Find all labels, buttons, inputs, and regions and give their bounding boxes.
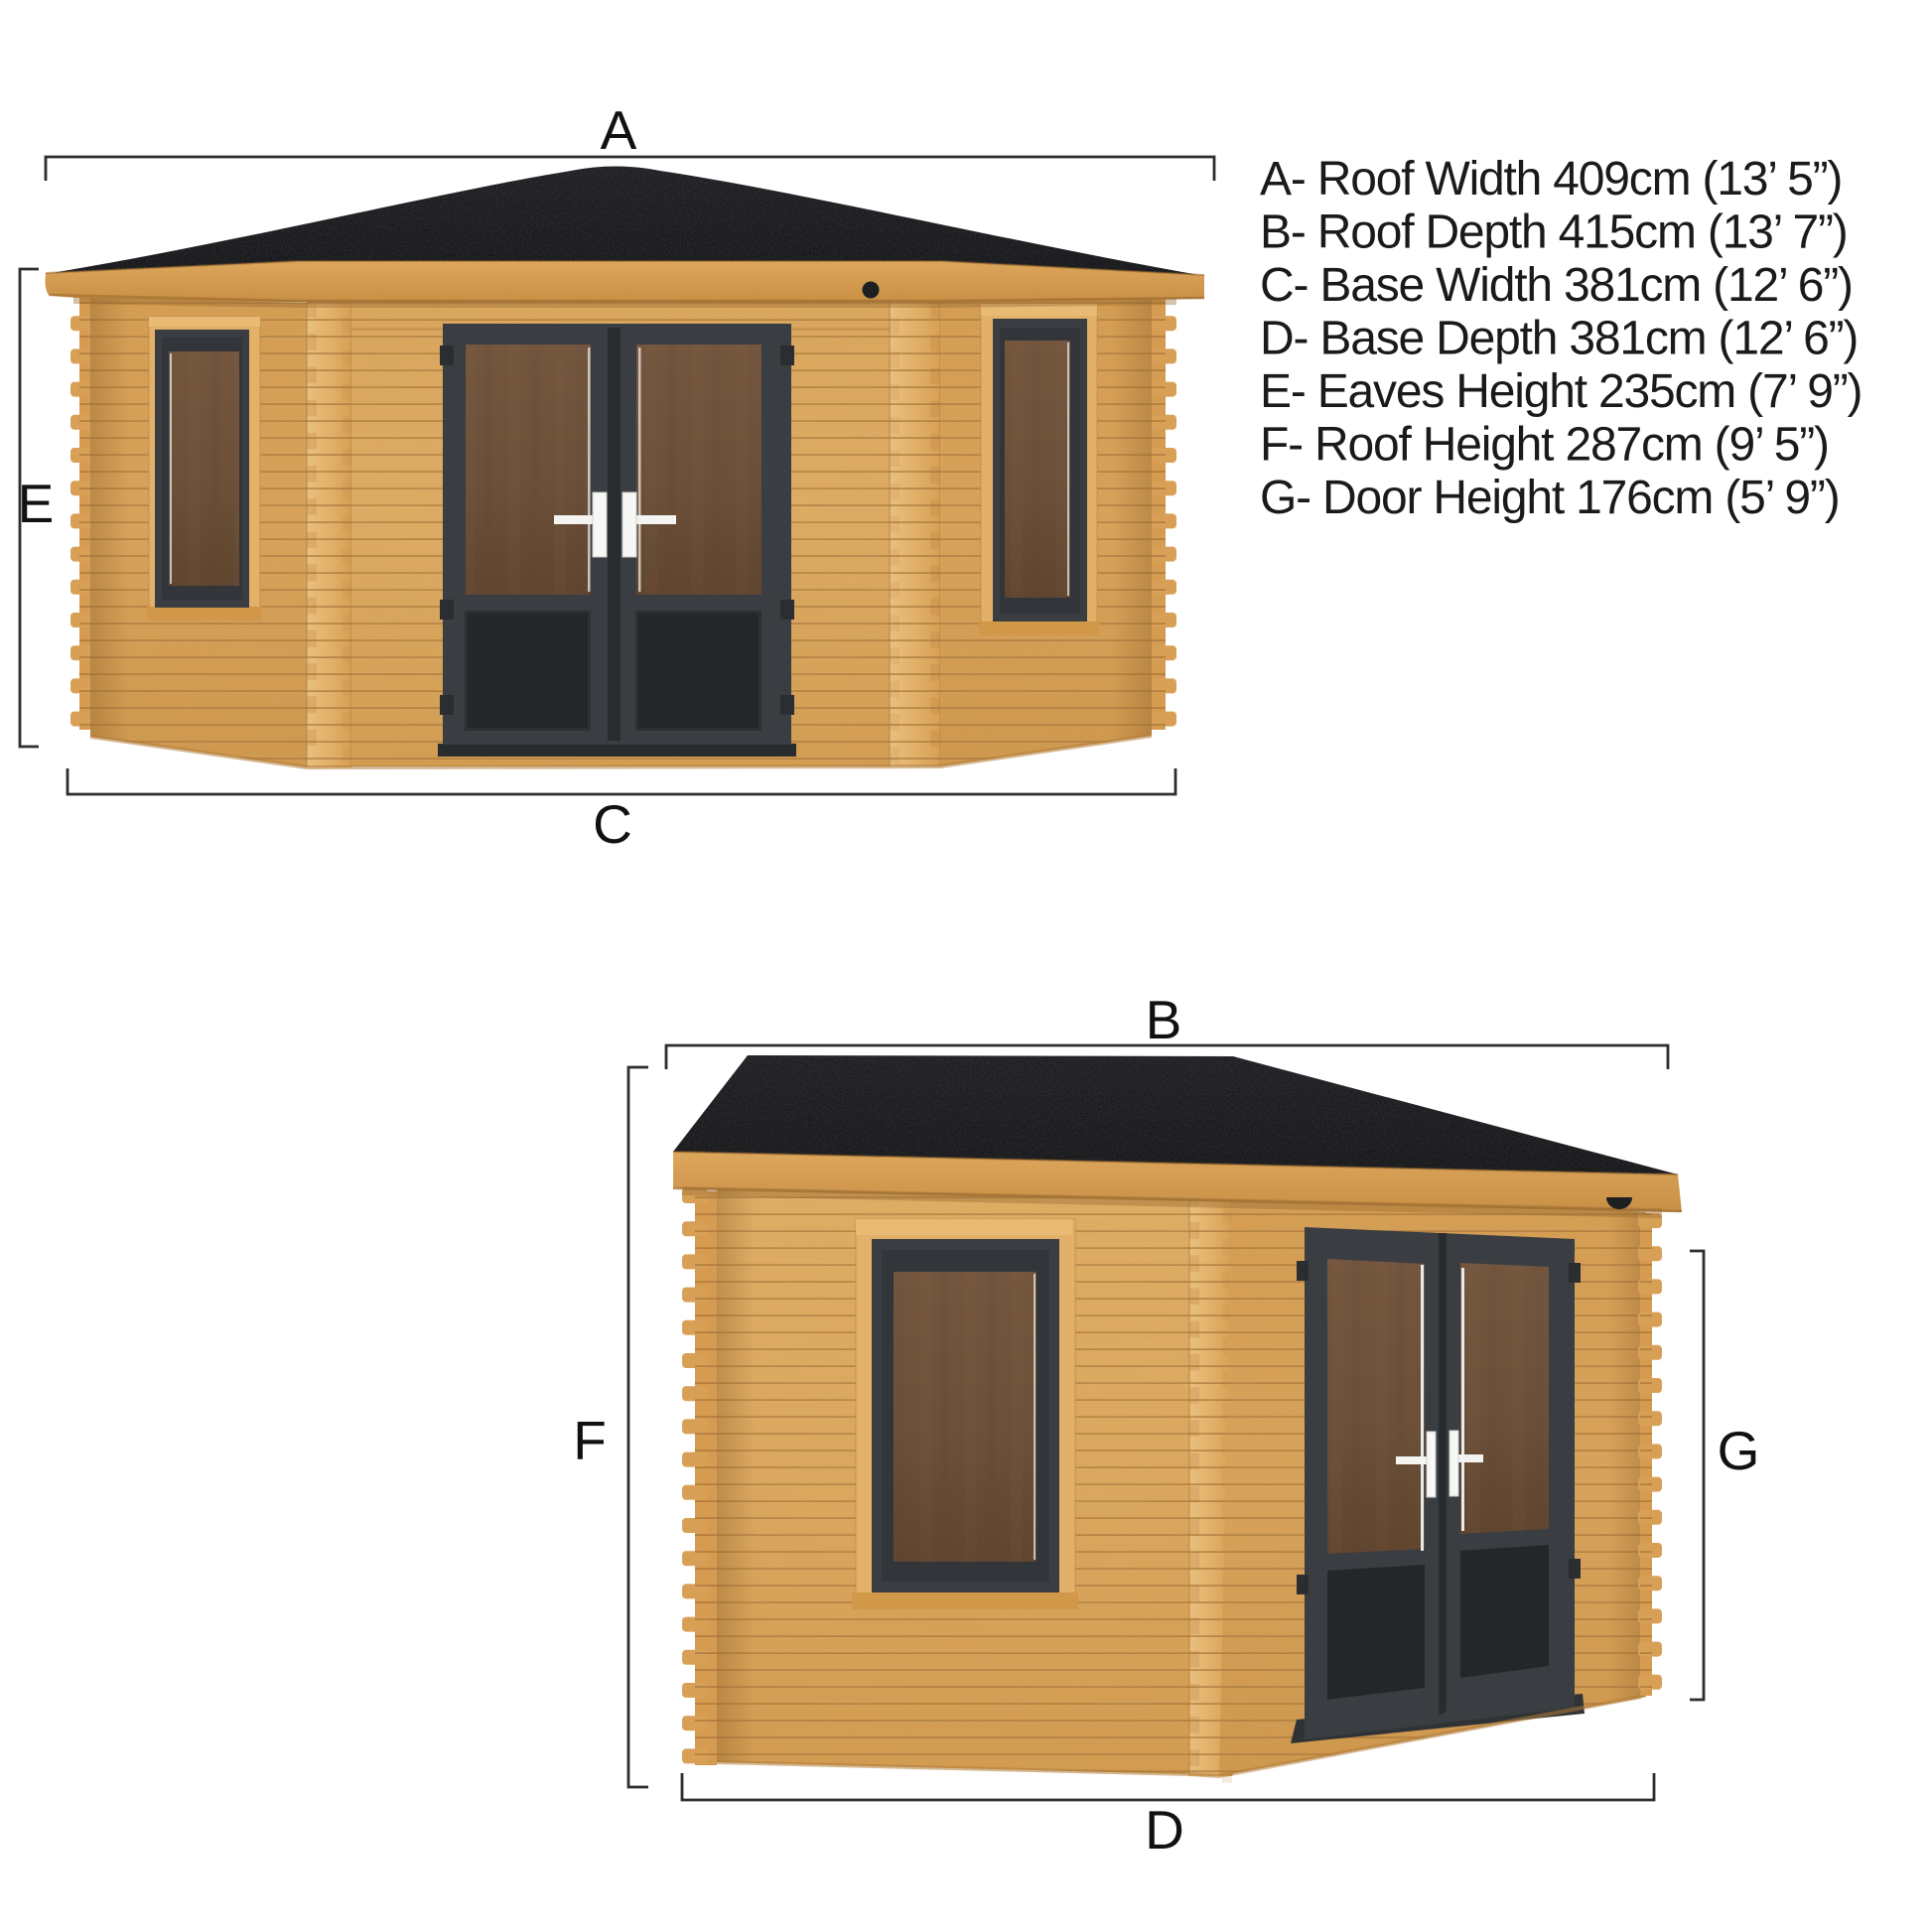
svg-text:F: F (573, 1410, 607, 1471)
svg-text:D: D (1145, 1799, 1184, 1861)
svg-text:G: G (1718, 1420, 1760, 1481)
svg-text:C: C (593, 793, 632, 855)
svg-text:B: B (1146, 989, 1182, 1050)
svg-text:C- Base Width 381cm (12’ 6”): C- Base Width 381cm (12’ 6”) (1260, 259, 1853, 312)
svg-text:E- Eaves Height 235cm (7’ 9”): E- Eaves Height 235cm (7’ 9”) (1260, 365, 1862, 418)
svg-text:D- Base Depth 381cm (12’ 6”): D- Base Depth 381cm (12’ 6”) (1260, 313, 1858, 365)
svg-text:E: E (18, 473, 55, 534)
svg-text:F- Roof Height 287cm (9’ 5”): F- Roof Height 287cm (9’ 5”) (1260, 419, 1829, 472)
svg-text:B- Roof Depth 415cm (13’ 7”): B- Roof Depth 415cm (13’ 7”) (1260, 207, 1848, 259)
svg-text:A- Roof Width 409cm (13’ 5”): A- Roof Width 409cm (13’ 5”) (1260, 153, 1842, 206)
svg-text:A: A (601, 99, 637, 161)
svg-text:G- Door Height 176cm (5’ 9”): G- Door Height 176cm (5’ 9”) (1260, 472, 1840, 524)
